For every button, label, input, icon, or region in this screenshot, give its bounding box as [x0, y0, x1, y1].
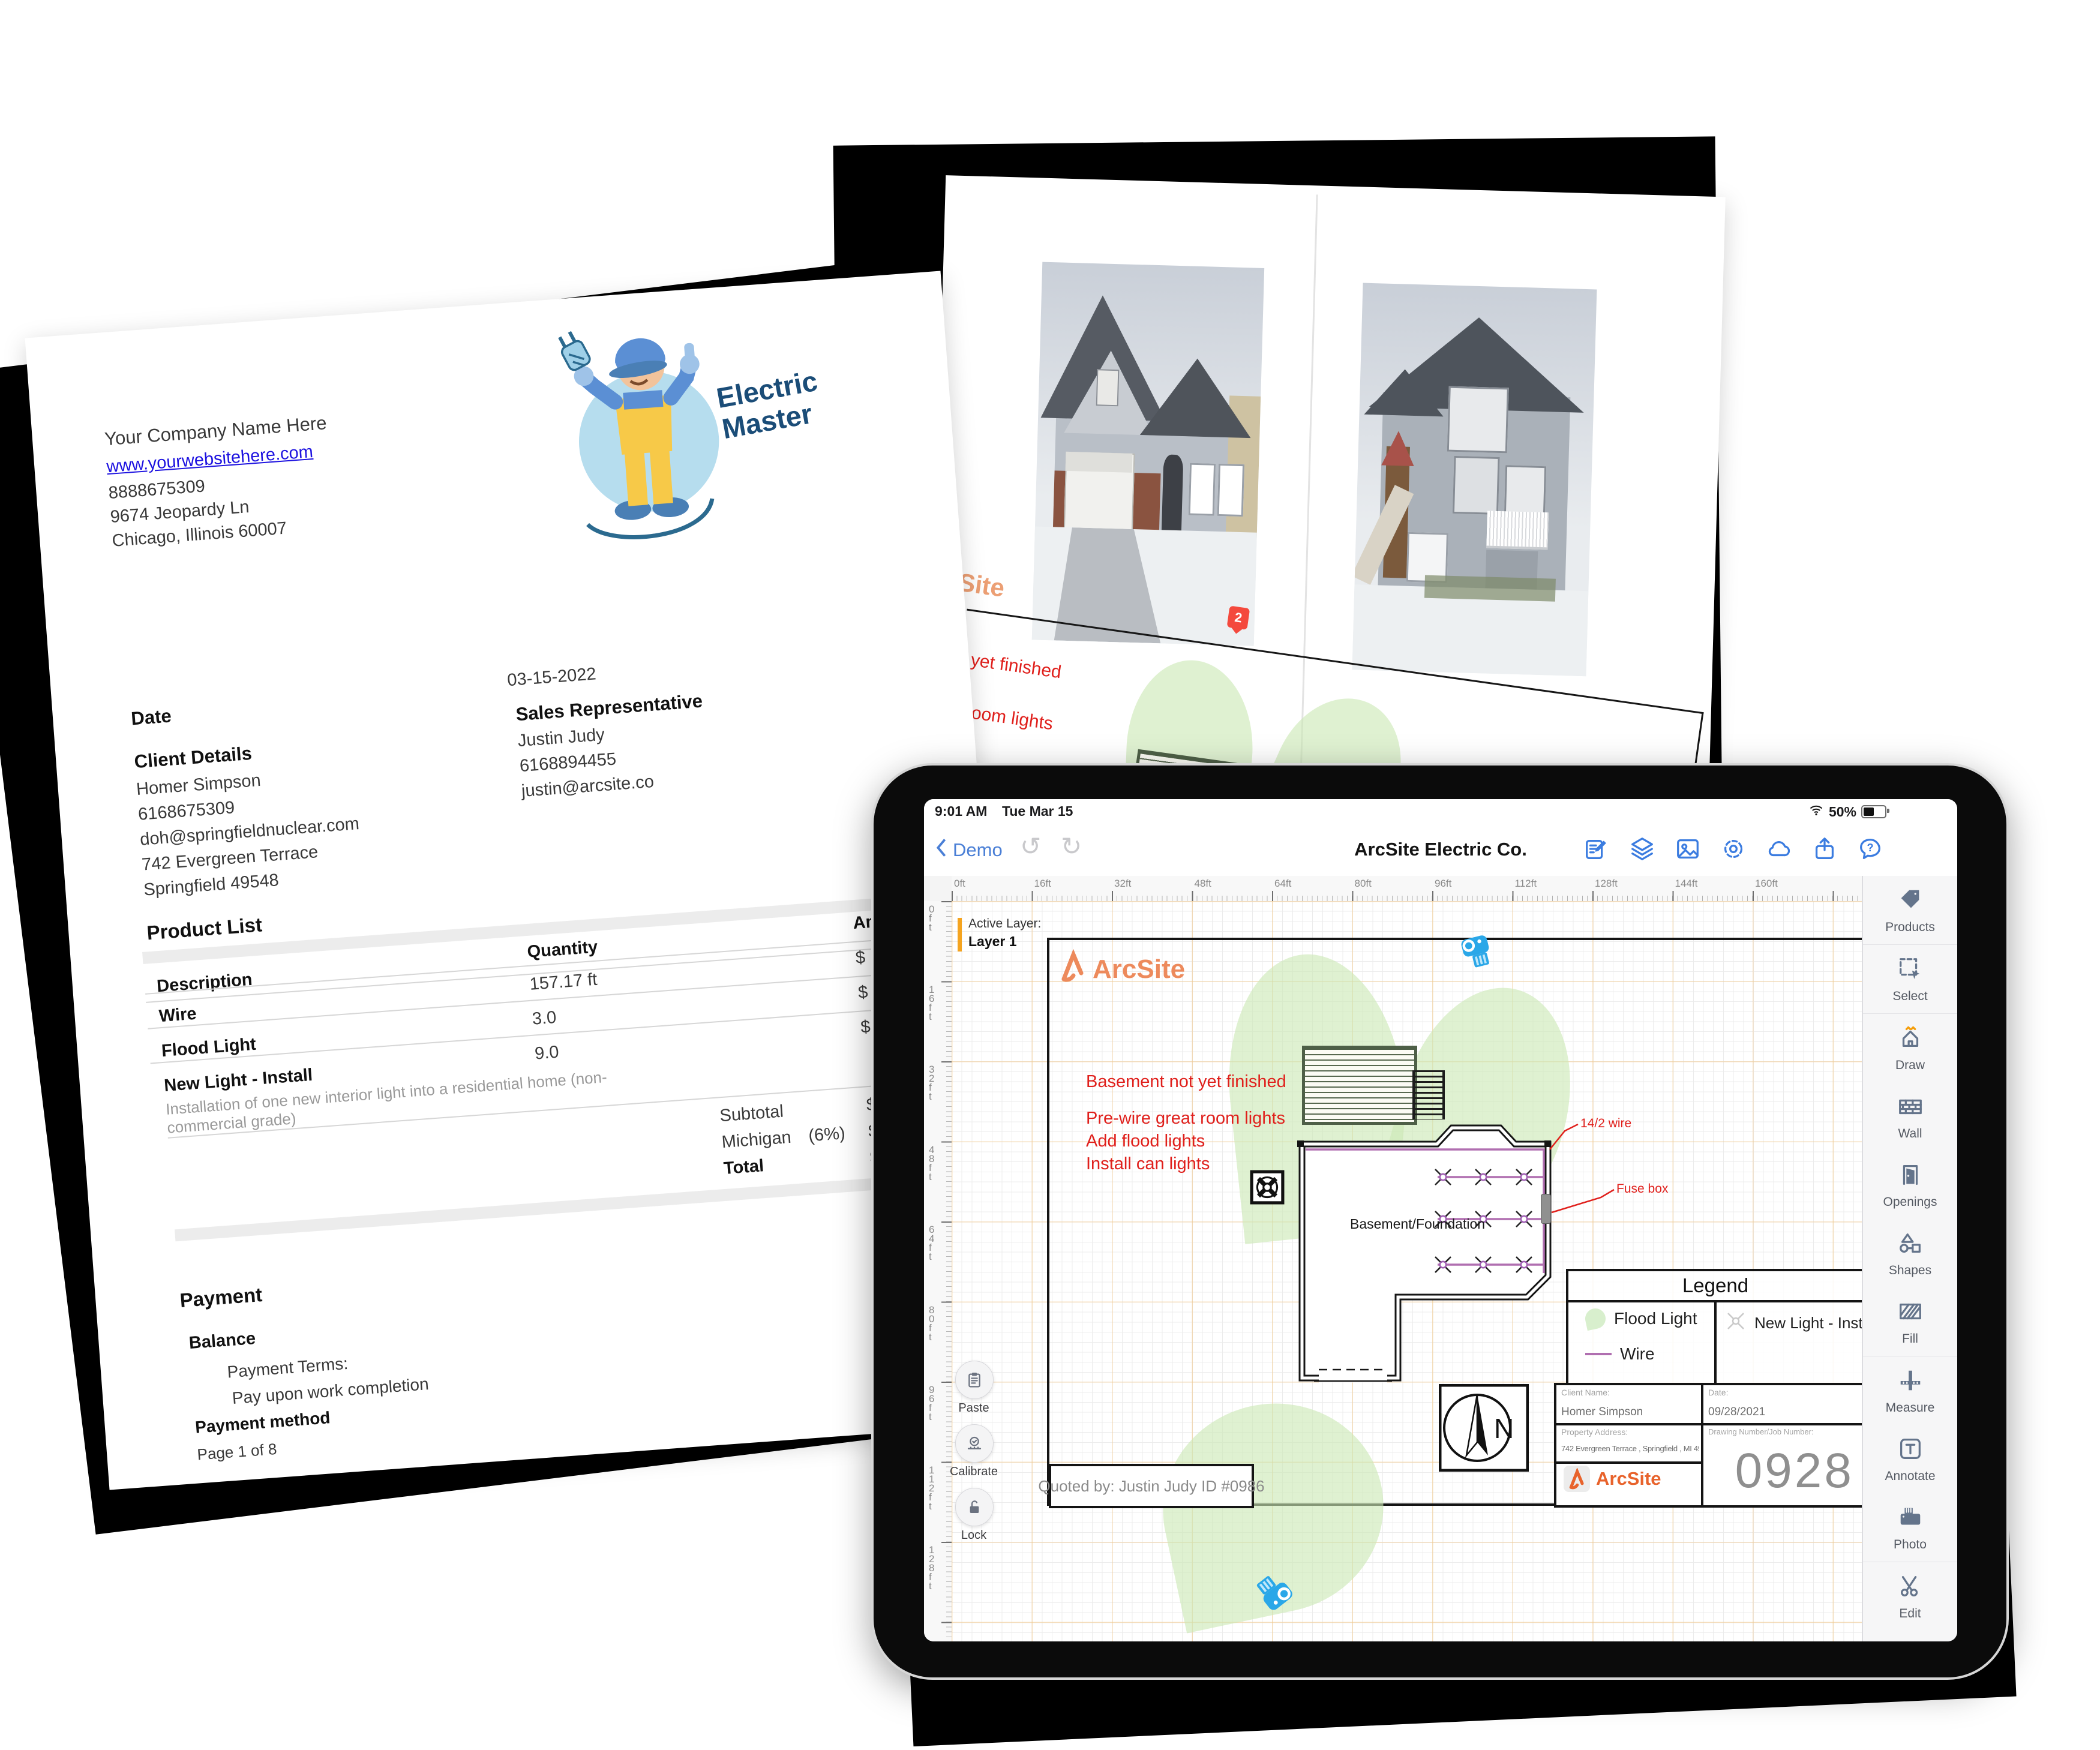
sales-rep-email: justin@arcsite.co [521, 772, 655, 802]
floor-plan-walls [1284, 1123, 1560, 1387]
tool-sidebar: ProductsSelectDrawWallOpeningsShapesFill… [1862, 876, 1957, 1641]
stairs [1412, 1070, 1445, 1119]
client-name: Homer Simpson [136, 771, 262, 800]
sales-rep-phone: 6168894455 [519, 749, 617, 776]
active-layer-label: Active Layer: [968, 917, 1041, 931]
ruler-v-label: 1 2 8 f t [929, 1545, 934, 1590]
ruler-h-label: 96ft [1435, 878, 1451, 890]
product-row-quantity: 3.0 [532, 1008, 557, 1029]
tool-label: Photo [1894, 1538, 1927, 1552]
client-phone: 6168675309 [137, 798, 235, 825]
document-title: ArcSite Electric Co. [1354, 839, 1527, 860]
tool-fill[interactable]: Fill [1863, 1287, 1957, 1356]
legend-block: Legend Flood Light Wire New Light - Inst… [1566, 1269, 1865, 1388]
tool-label: Select [1892, 989, 1927, 1004]
floodlight-symbol [1248, 1572, 1292, 1619]
tool-label: Openings [1883, 1195, 1937, 1209]
nav-bar: Demo ↺ ↻ ArcSite Electric Co. ? [924, 822, 1957, 876]
fuse-box-symbol [1541, 1194, 1551, 1224]
ipad-screen: 9:01 AM Tue Mar 15 50% [924, 799, 1957, 1641]
shapes-icon [1897, 1229, 1924, 1260]
date-value: 09/28/2021 [1708, 1406, 1765, 1419]
ruler-h-label: 160ft [1755, 878, 1778, 890]
fab-lock[interactable] [955, 1488, 994, 1526]
newlight-legend-icon [1726, 1311, 1746, 1335]
ruler-h-label: 32ft [1114, 878, 1131, 890]
fab-label: Calibrate [938, 1465, 1010, 1479]
electric-master-logo-text: ElectricMaster [714, 365, 826, 445]
floodlight-symbol [1460, 930, 1502, 975]
share-icon[interactable] [1811, 835, 1838, 866]
annotate-text-icon [1897, 1435, 1924, 1466]
date-label: Date: [1708, 1388, 1728, 1397]
tool-label: Fill [1902, 1332, 1918, 1346]
wall-node [1544, 1140, 1551, 1147]
product-row-quantity: 9.0 [534, 1043, 560, 1064]
arcsite-logo-icon [1564, 1466, 1590, 1492]
room-label: Basement/Foundation [1350, 1216, 1485, 1232]
redo-button[interactable]: ↻ [1061, 832, 1082, 861]
legend-flood-label: Flood Light [1614, 1309, 1697, 1328]
sales-rep-heading: Sales Representative [515, 691, 703, 726]
tool-label: Annotate [1885, 1469, 1935, 1484]
tool-label: Edit [1899, 1607, 1921, 1621]
ruler-h-label: 128ft [1595, 878, 1618, 890]
fusebox-annotation-label: Fuse box [1616, 1182, 1668, 1196]
payment-method-label: Payment method [194, 1408, 331, 1437]
title-block: Client Name: Homer Simpson Date: 09/28/2… [1554, 1383, 1865, 1508]
tool-products[interactable]: Products [1863, 876, 1957, 944]
fab-label: Lock [938, 1529, 1010, 1542]
client-address2: Springfield 49548 [143, 871, 280, 900]
battery-percent: 50% [1829, 804, 1856, 820]
ruler-h-label: 64ft [1274, 878, 1291, 890]
legend-wire-label: Wire [1620, 1344, 1655, 1364]
fab-label: Paste [938, 1401, 1010, 1415]
tool-select[interactable]: Select [1863, 944, 1957, 1013]
draw-house-icon [1897, 1024, 1924, 1055]
back-chevron-icon [934, 838, 949, 863]
arcsite-titleblock-logo: ArcSite [1564, 1466, 1661, 1492]
ruler-v-label: 8 0 f t [929, 1305, 934, 1341]
payment-heading: Payment [179, 1283, 263, 1312]
ruler-v-label: 0 f t [929, 905, 934, 932]
electric-master-mascot [553, 305, 737, 545]
layers-icon[interactable] [1628, 835, 1656, 866]
horizontal-ruler: 0ft16ft32ft48ft64ft80ft96ft112ft128ft144… [952, 876, 1863, 902]
red-annotation: Basement not yet finished [1086, 1072, 1286, 1092]
tool-measure[interactable]: Measure [1863, 1356, 1957, 1425]
row-separator [151, 1002, 982, 1064]
page-footer: Page 1 of 8 [197, 1440, 278, 1464]
client-name-value: Homer Simpson [1561, 1406, 1643, 1419]
legend-newlight-label: New Light - Install [1754, 1314, 1879, 1332]
door-opening-icon [1897, 1161, 1924, 1191]
select-icon [1897, 955, 1924, 986]
composition: 1 - 1 2 - 1 ArcSite 2 Basement not yet f… [0, 0, 2100, 1750]
fab-calibrate[interactable] [955, 1424, 994, 1463]
status-bar: 9:01 AM Tue Mar 15 50% [924, 799, 1957, 822]
tool-label: Draw [1895, 1058, 1925, 1073]
tool-wall[interactable]: Wall [1863, 1082, 1957, 1151]
layer-color-bar [958, 918, 962, 951]
date-label: Date [130, 705, 172, 730]
help-chat-icon[interactable]: ? [1856, 835, 1884, 866]
tool-openings[interactable]: Openings [1863, 1151, 1957, 1219]
tool-label: Products [1885, 920, 1935, 935]
settings-gear-icon[interactable] [1720, 835, 1747, 866]
wire-legend-icon [1585, 1353, 1612, 1355]
product-row-description: Flood Light [161, 1035, 257, 1061]
date-value: 03-15-2022 [506, 664, 596, 691]
ruler-h-label: 48ft [1195, 878, 1211, 890]
company-phone: 8888675309 [108, 476, 206, 503]
red-annotation: Install can lights [1086, 1154, 1210, 1174]
fill-hatch-icon [1897, 1298, 1924, 1328]
product-list-heading: Product List [146, 913, 263, 944]
ruler-v-label: 1 6 f t [929, 985, 934, 1021]
camera-icon [1897, 1503, 1924, 1534]
column-quantity: Quantity [527, 937, 599, 962]
status-time: 9:01 AM [935, 803, 987, 820]
svg-text:?: ? [1867, 842, 1873, 854]
svg-text:N: N [1494, 1413, 1514, 1444]
drawing-number-value: 0928 [1735, 1443, 1854, 1499]
summary-label: Michigan [721, 1128, 792, 1152]
tool-annotate[interactable]: Annotate [1863, 1425, 1957, 1493]
product-row-amount: $ [857, 983, 869, 1003]
tool-label: Measure [1886, 1401, 1935, 1415]
ruler-h-label: 144ft [1675, 878, 1698, 890]
summary-label: Total [723, 1156, 764, 1179]
sales-rep-name: Justin Judy [517, 725, 605, 752]
drawing-number-label: Drawing Number/Job Number: [1708, 1427, 1814, 1436]
property-address-label: Property Address: [1561, 1427, 1628, 1437]
plan-pin-marker: 2 [1227, 606, 1250, 630]
battery-icon [1861, 805, 1886, 818]
tool-draw[interactable]: Draw [1863, 1013, 1957, 1082]
tool-label: Shapes [1889, 1263, 1931, 1278]
fab-paste[interactable] [955, 1361, 994, 1399]
tool-label: Wall [1898, 1127, 1922, 1141]
arcsite-logo-icon [1059, 949, 1087, 989]
summary-label: Subtotal [719, 1102, 784, 1127]
image-icon[interactable] [1674, 835, 1702, 866]
tool-shapes[interactable]: Shapes [1863, 1219, 1957, 1287]
measure-ruler-icon [1897, 1367, 1924, 1397]
red-annotation: Pre-wire great room lights [1086, 1109, 1285, 1128]
property-address-value: 742 Evergreen Terrace , Springfield , MI… [1561, 1444, 1699, 1453]
quoted-by-box: Quoted by: Justin Judy ID #0986 [1049, 1464, 1254, 1508]
compass: N [1439, 1384, 1529, 1472]
ruler-v-label: 6 4 f t [929, 1225, 934, 1261]
arcsite-drawing-logo: ArcSite [1059, 949, 1185, 989]
wall-brick-icon [1897, 1092, 1924, 1123]
client-details-heading: Client Details [133, 743, 252, 773]
ruler-v-label: 9 6 f t [929, 1385, 934, 1421]
undo-button[interactable]: ↺ [1020, 832, 1041, 861]
tool-photo[interactable]: Photo [1863, 1493, 1957, 1562]
wire-annotation-label: 14/2 wire [1580, 1116, 1631, 1131]
ruler-v-label: 3 2 f t [929, 1065, 934, 1101]
scissors-icon [1897, 1572, 1924, 1603]
floodlight-legend-icon [1583, 1307, 1607, 1331]
compose-icon[interactable] [1583, 835, 1610, 866]
legend-title: Legend [1568, 1271, 1862, 1302]
summary-note: (6%) [808, 1124, 845, 1146]
wifi-icon [1808, 803, 1824, 820]
active-layer-value: Layer 1 [968, 933, 1017, 950]
ruler-h-label: 0ft [954, 878, 965, 890]
ipad: 9:01 AM Tue Mar 15 50% [871, 763, 2009, 1680]
red-annotation: Add flood lights [1086, 1131, 1205, 1151]
ruler-h-label: 16ft [1034, 878, 1051, 890]
balance-label: Balance [188, 1329, 256, 1353]
payment-terms-label: Payment Terms: [227, 1354, 349, 1382]
products-tag-icon [1897, 886, 1924, 917]
ruler-h-label: 112ft [1515, 878, 1537, 890]
ruler-h-label: 80ft [1355, 878, 1372, 890]
client-name-label: Client Name: [1561, 1388, 1610, 1397]
tool-edit[interactable]: Edit [1863, 1562, 1957, 1631]
ruler-v-label: 1 1 2 f t [929, 1466, 934, 1511]
cloud-icon[interactable] [1765, 835, 1793, 866]
back-button[interactable]: Demo [934, 838, 1003, 863]
ruler-v-label: 4 8 f t [929, 1145, 934, 1181]
product-row-quantity: 157.17 ft [529, 970, 598, 995]
product-row-description: Wire [158, 1004, 197, 1026]
wall-node [1297, 1140, 1304, 1147]
deck [1302, 1046, 1417, 1125]
product-row-amount: $ [855, 948, 866, 968]
fan-symbol [1250, 1170, 1285, 1205]
status-date: Tue Mar 15 [1002, 803, 1073, 820]
ruler-corner [924, 876, 953, 902]
